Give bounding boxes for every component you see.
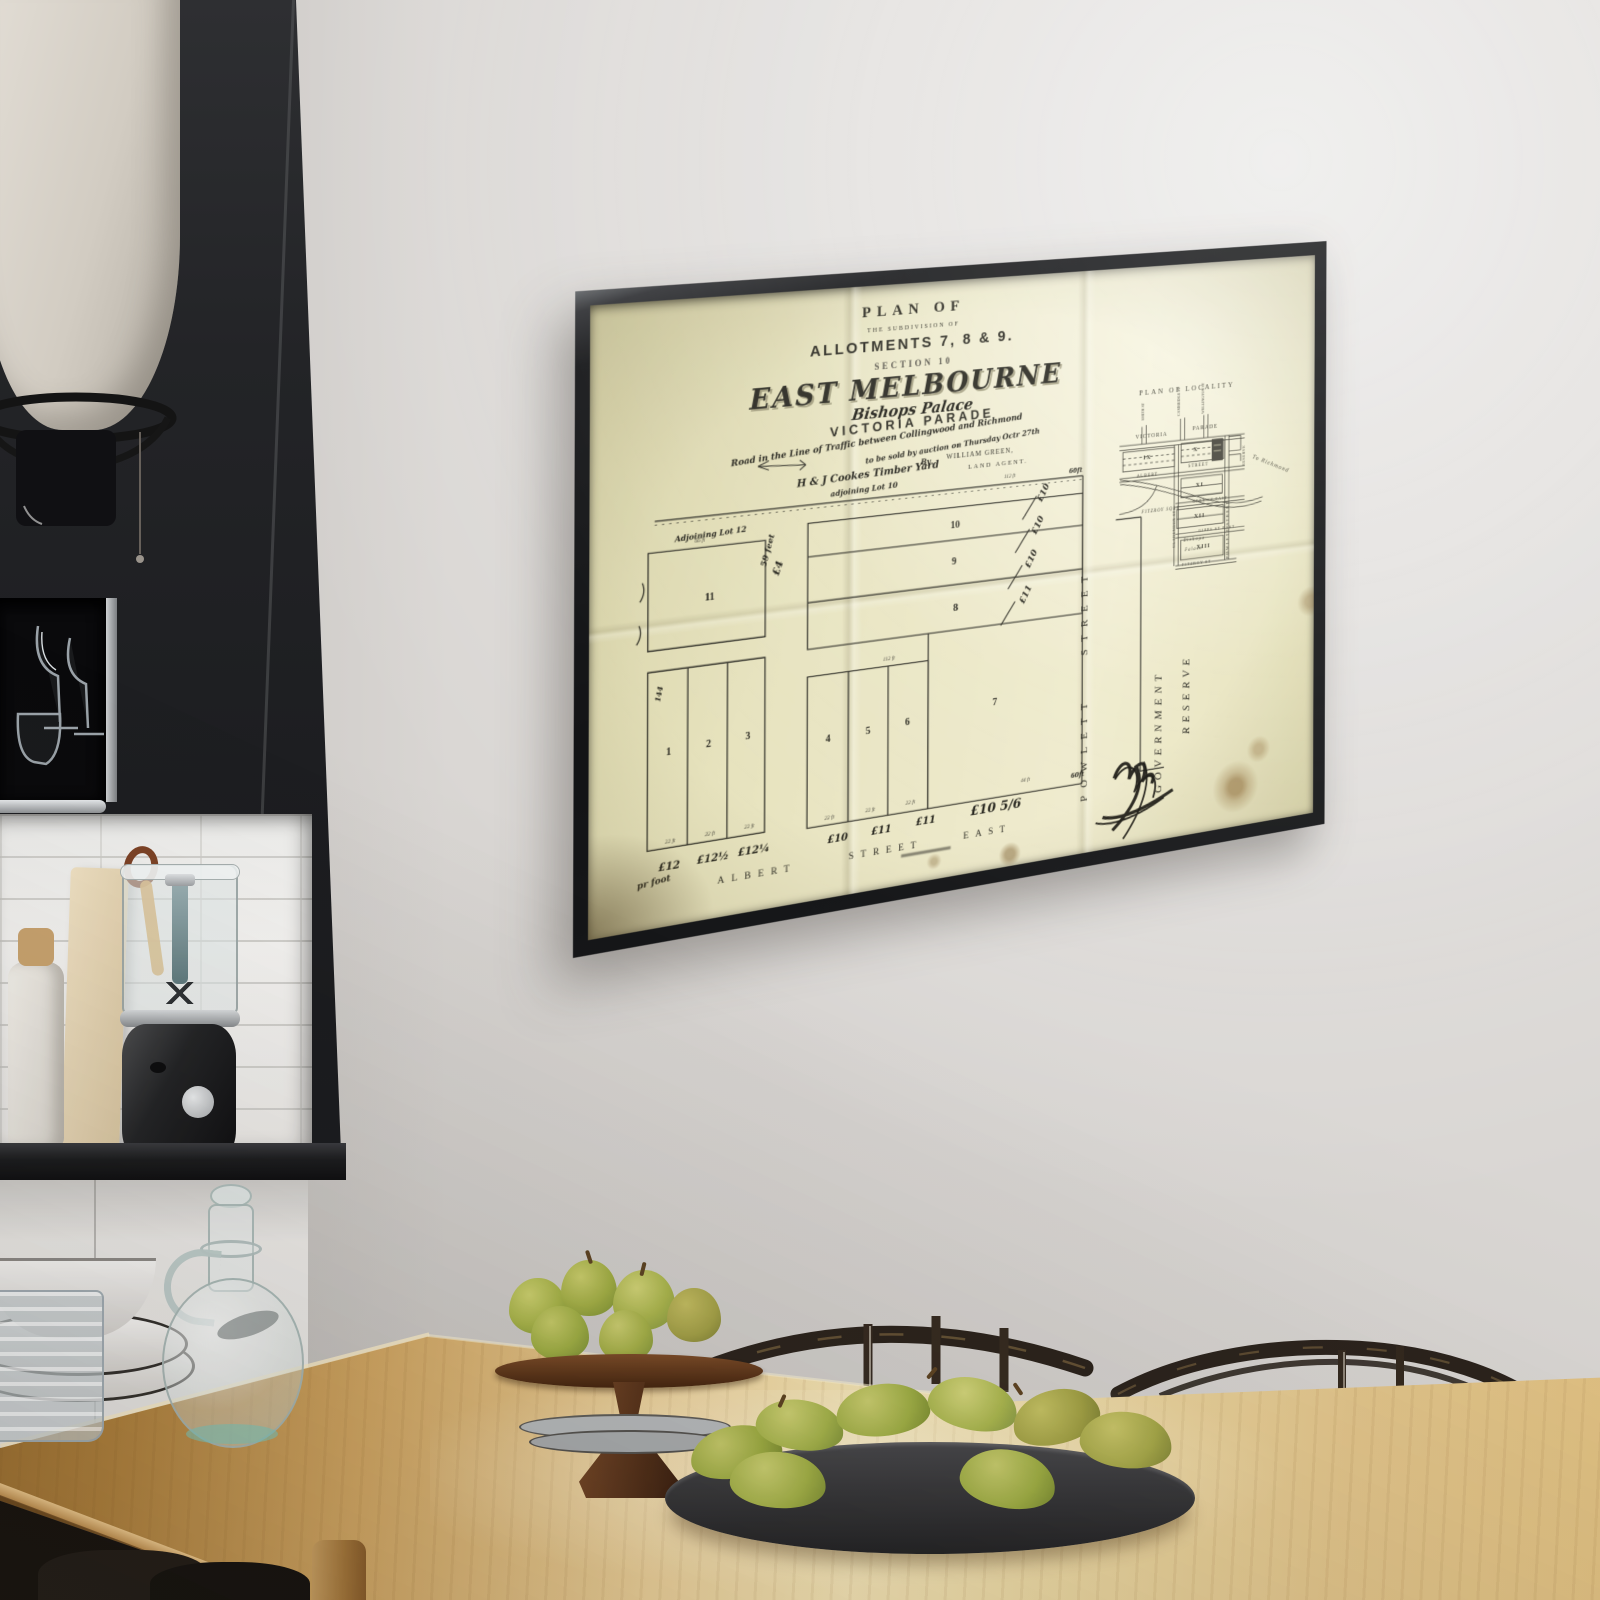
open-shelf-recess	[0, 598, 112, 802]
government-reserve-word2: RESERVE	[1181, 549, 1192, 735]
tray-pear-3	[834, 1379, 933, 1441]
map-paper: PLAN OF THE SUBDIVISION OF ALLOTMENTS 7,…	[588, 255, 1315, 940]
locality-powlett-st: POWLETT STREET	[1225, 431, 1230, 559]
lot-5: 5	[866, 725, 871, 737]
blender-small-button	[150, 1062, 166, 1073]
locality-block-xii: XII	[1194, 512, 1205, 520]
locality-block-ix: IX	[1143, 454, 1151, 462]
locality-block-x: X	[1193, 446, 1198, 453]
ribbed-drinking-glass	[0, 1290, 104, 1442]
blender	[120, 864, 240, 1170]
locality-clarendon-st: CLARENDON ST	[1171, 475, 1176, 547]
cruet-bulb	[162, 1278, 304, 1448]
pear-stem	[926, 1366, 938, 1379]
pear-on-stand-4	[667, 1288, 721, 1342]
lot-7: 7	[993, 697, 998, 709]
locality-wellington-st: WELLINGTON ST	[1201, 382, 1205, 414]
lot-2: 2	[706, 738, 711, 750]
pendant-lamp-shade	[0, 0, 180, 430]
lot-8: 8	[953, 603, 958, 615]
lot-10: 10	[951, 519, 960, 531]
locality-cambridge-st: CAMBRIDGE ST	[1177, 386, 1181, 417]
cruet-base-teal	[186, 1424, 278, 1444]
cabinet-handle-rail	[0, 800, 106, 813]
tray-pear-4	[924, 1369, 1023, 1439]
lot-11: 11	[705, 591, 715, 604]
pear-on-stand-5	[531, 1306, 589, 1360]
lot-3: 3	[745, 731, 750, 743]
blender-shaft-collar	[165, 874, 195, 886]
kitchen-room-scene: PLAN OF THE SUBDIVISION OF ALLOTMENTS 7,…	[0, 0, 1600, 1600]
locality-block-xi: XI	[1196, 481, 1204, 489]
lot-9: 9	[952, 556, 957, 568]
bottle-wood-cap	[18, 928, 54, 966]
powlett-street-label: POWLETT STREET	[1079, 494, 1091, 802]
shelf-metal-edge	[106, 598, 117, 802]
handwritten-signature	[1098, 742, 1180, 836]
pear-stem	[1012, 1382, 1023, 1396]
dim-112-top: 112 ft	[1004, 473, 1015, 480]
dark-countertop	[0, 1143, 346, 1180]
wine-glasses-icon	[0, 598, 112, 802]
blender-button	[182, 1086, 214, 1118]
blender-shaft	[172, 878, 188, 984]
cutting-board	[61, 867, 129, 1149]
table-leg	[312, 1540, 366, 1600]
white-bottle-grinder	[8, 962, 64, 1148]
pear-tray-group	[660, 1360, 1200, 1560]
lot-1: 1	[666, 746, 671, 758]
blender-blade	[166, 982, 194, 1004]
glass-cruet	[158, 1184, 308, 1464]
locality-smith-st: SMITH ST	[1141, 393, 1145, 420]
stool-seat-right	[150, 1562, 310, 1600]
locality-reserve: RESERVE	[1241, 420, 1245, 466]
pendant-lamp-cage-icon	[0, 386, 194, 576]
dim-66: 66 ft	[695, 538, 705, 545]
lot-6: 6	[905, 717, 910, 729]
lot-4: 4	[825, 733, 830, 745]
hand-60-top: 60ft	[1069, 466, 1082, 475]
